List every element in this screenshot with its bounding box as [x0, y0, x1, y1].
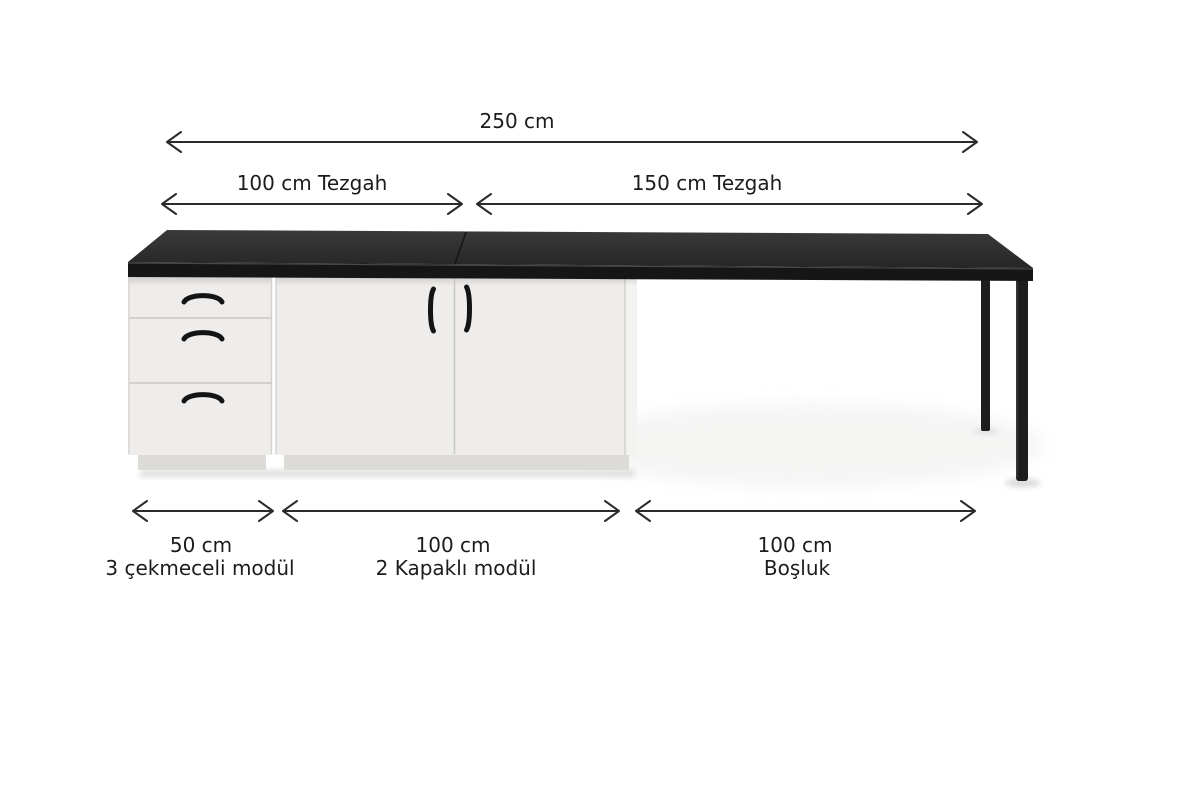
module-size-label-2: 100 cm	[415, 533, 490, 557]
arrow-module-gap	[636, 501, 975, 521]
arrow-total-width	[167, 132, 977, 152]
drawer-module-plinth	[138, 455, 266, 470]
product-dimension-diagram: 250 cm 100 cm Tezgah 150 cm Tezgah 50 cm…	[0, 0, 1200, 800]
dimension-label-total: 250 cm	[479, 109, 554, 133]
door-module	[275, 276, 637, 470]
module-size-label-1: 50 cm	[170, 533, 232, 557]
countertop-top-surface	[128, 230, 1033, 268]
drawer-module-body	[128, 276, 272, 455]
cabinet-base-shadow	[140, 470, 635, 477]
module-name-label-2: 2 Kapaklı modül	[376, 556, 537, 580]
dimension-label-counter-2: 150 cm Tezgah	[632, 171, 783, 195]
arrow-counter-left	[162, 194, 462, 214]
door-module-plinth	[284, 455, 629, 470]
floor-shadow-ambient	[575, 403, 1045, 487]
arrow-module-drawers	[133, 501, 273, 521]
module-size-label-3: 100 cm	[757, 533, 832, 557]
arrow-counter-right	[477, 194, 982, 214]
drawer-module	[128, 276, 272, 470]
module-name-label-3: Boşluk	[764, 556, 830, 580]
front-leg-highlight	[1016, 278, 1018, 478]
door-module-body	[275, 276, 625, 455]
countertop	[128, 230, 1033, 281]
product-illustration	[0, 0, 1200, 800]
back-leg	[981, 274, 990, 431]
door-module-side-panel	[625, 276, 637, 460]
dimension-label-counter-1: 100 cm Tezgah	[237, 171, 388, 195]
module-name-label-1: 3 çekmeceli modül	[105, 556, 294, 580]
arrow-module-doors	[283, 501, 619, 521]
